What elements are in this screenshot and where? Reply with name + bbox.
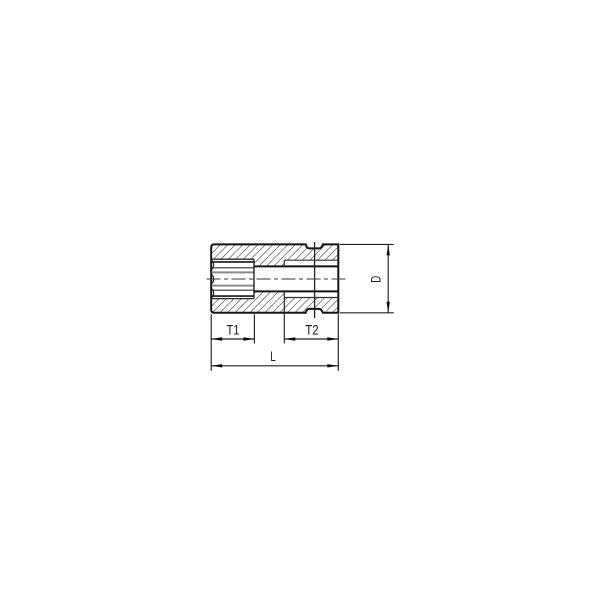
svg-text:D: D: [368, 275, 383, 282]
svg-text:L: L: [270, 349, 276, 364]
svg-text:T1: T1: [227, 323, 240, 338]
svg-text:T2: T2: [305, 323, 319, 338]
